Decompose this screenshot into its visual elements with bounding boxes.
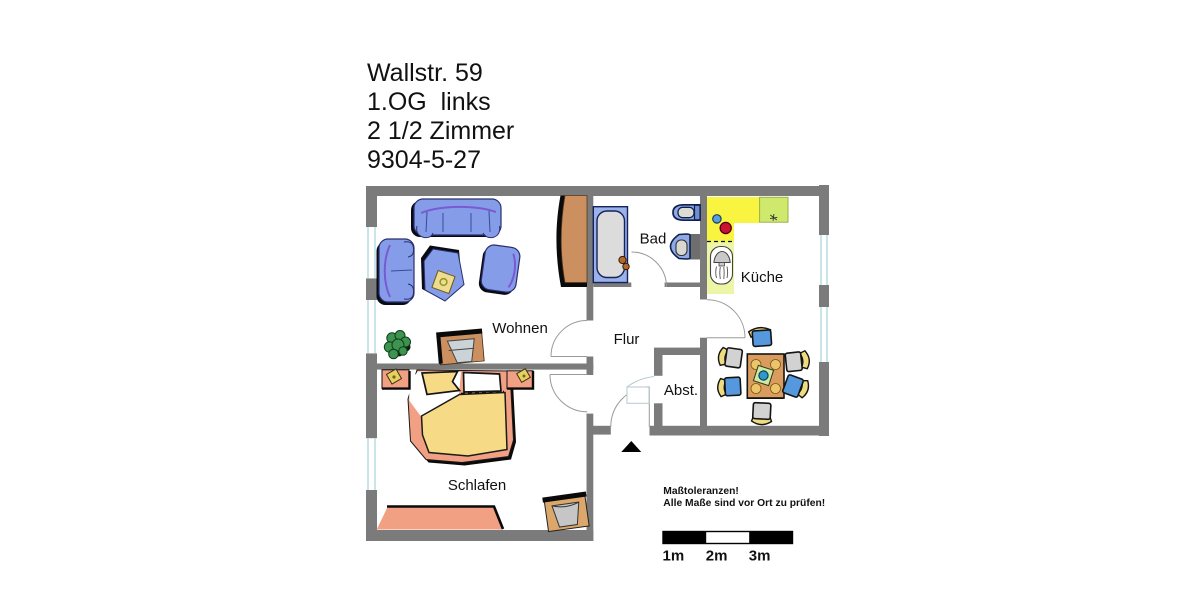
svg-text:Bad: Bad [640, 230, 667, 247]
svg-text:2m: 2m [706, 548, 728, 565]
svg-text:Schlafen: Schlafen [448, 477, 506, 494]
svg-text:Maßtoleranzen!: Maßtoleranzen! [663, 486, 739, 497]
svg-text:3m: 3m [749, 548, 771, 565]
svg-text:Flur: Flur [614, 331, 640, 348]
svg-text:1m: 1m [663, 548, 685, 565]
svg-text:2 1/2 Zimmer: 2 1/2 Zimmer [367, 117, 514, 145]
svg-text:9304-5-27: 9304-5-27 [367, 146, 481, 174]
svg-text:Wohnen: Wohnen [492, 320, 548, 337]
svg-text:Alle Maße sind vor Ort zu prüf: Alle Maße sind vor Ort zu prüfen! [663, 498, 825, 509]
svg-text:Wallstr. 59: Wallstr. 59 [367, 59, 483, 87]
svg-text:1.OG links: 1.OG links [367, 88, 491, 116]
svg-text:Abst.: Abst. [664, 382, 698, 399]
svg-text:Küche: Küche [741, 269, 784, 286]
